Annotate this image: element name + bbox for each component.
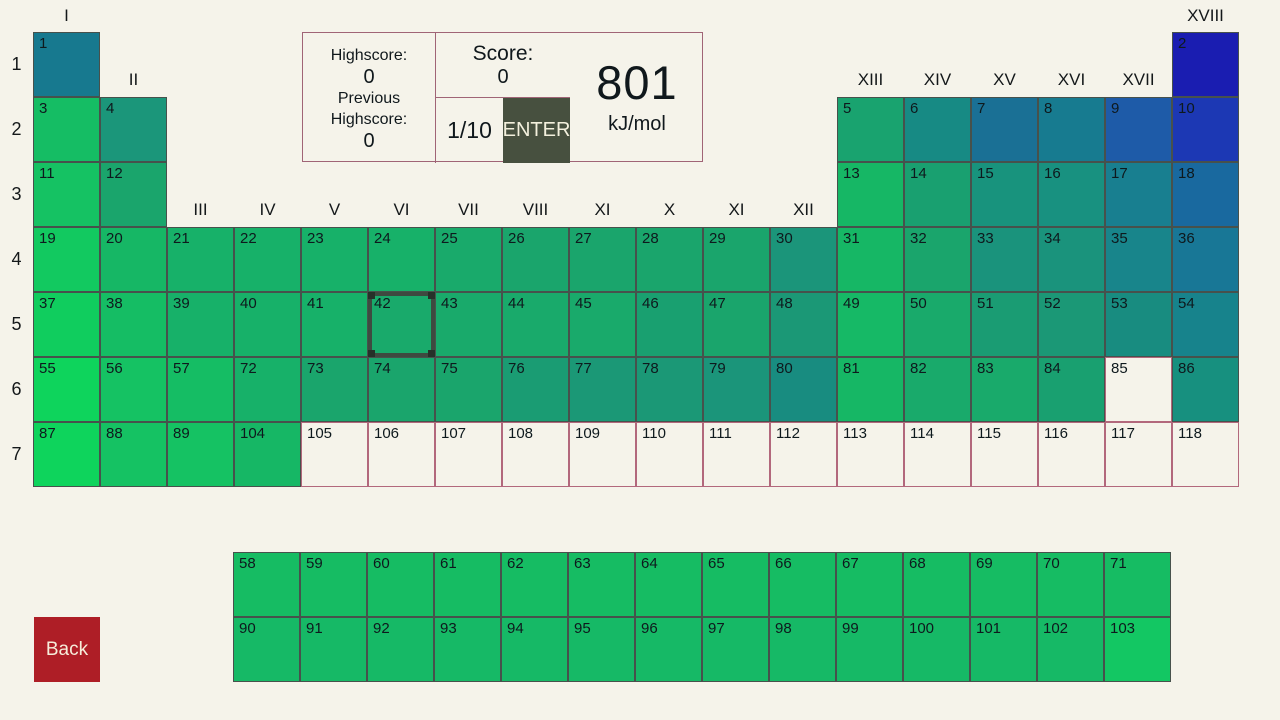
period-label-5: 5 xyxy=(0,292,33,357)
element-cell-51[interactable]: 51 xyxy=(971,292,1038,357)
element-cell-5[interactable]: 5 xyxy=(837,97,904,162)
element-number: 40 xyxy=(240,294,257,313)
element-cell-79[interactable]: 79 xyxy=(703,357,770,422)
element-number: 26 xyxy=(508,229,525,248)
element-number: 87 xyxy=(39,424,56,443)
element-cell-66[interactable]: 66 xyxy=(769,552,836,617)
element-number: 83 xyxy=(977,359,994,378)
element-cell-67[interactable]: 67 xyxy=(836,552,903,617)
element-number: 54 xyxy=(1178,294,1195,313)
element-cell-61[interactable]: 61 xyxy=(434,552,501,617)
element-number: 86 xyxy=(1178,359,1195,378)
element-number: 109 xyxy=(575,424,600,443)
element-number: 8 xyxy=(1044,99,1052,118)
element-cell-88[interactable]: 88 xyxy=(100,422,167,487)
element-number: 56 xyxy=(106,359,123,378)
element-cell-32[interactable]: 32 xyxy=(904,227,971,292)
element-cell-3[interactable]: 3 xyxy=(33,97,100,162)
element-number: 111 xyxy=(709,424,732,443)
element-cell-37[interactable]: 37 xyxy=(33,292,100,357)
element-number: 28 xyxy=(642,229,659,248)
element-cell-46[interactable]: 46 xyxy=(636,292,703,357)
element-cell-44[interactable]: 44 xyxy=(502,292,569,357)
element-cell-60[interactable]: 60 xyxy=(367,552,434,617)
element-number: 5 xyxy=(843,99,851,118)
element-number: 72 xyxy=(240,359,257,378)
ionization-energy-game-screen: Highscore: 0 Previous Highscore: 0 Score… xyxy=(0,0,1280,720)
element-cell-65[interactable]: 65 xyxy=(702,552,769,617)
element-number: 71 xyxy=(1110,554,1127,573)
element-cell-112[interactable]: 112 xyxy=(770,422,837,487)
element-cell-22[interactable]: 22 xyxy=(234,227,301,292)
element-number: 68 xyxy=(909,554,926,573)
element-cell-59[interactable]: 59 xyxy=(300,552,367,617)
group-label-iii: III xyxy=(167,200,234,220)
element-number: 39 xyxy=(173,294,190,313)
element-cell-35[interactable]: 35 xyxy=(1105,227,1172,292)
element-cell-77[interactable]: 77 xyxy=(569,357,636,422)
group-label-v: V xyxy=(301,200,368,220)
period-label-2: 2 xyxy=(0,97,33,162)
element-number: 50 xyxy=(910,294,927,313)
group-label-iv: IV xyxy=(234,200,301,220)
element-cell-80[interactable]: 80 xyxy=(770,357,837,422)
element-cell-64[interactable]: 64 xyxy=(635,552,702,617)
periodic-table-f-block-grid: 5859606162636465666768697071909192939495… xyxy=(233,552,1171,682)
element-number: 77 xyxy=(575,359,592,378)
element-cell-89[interactable]: 89 xyxy=(167,422,234,487)
element-number: 117 xyxy=(1111,424,1135,443)
element-cell-84[interactable]: 84 xyxy=(1038,357,1105,422)
element-cell-115[interactable]: 115 xyxy=(971,422,1038,487)
element-number: 104 xyxy=(240,424,265,443)
element-cell-102[interactable]: 102 xyxy=(1037,617,1104,682)
element-cell-116[interactable]: 116 xyxy=(1038,422,1105,487)
element-cell-63[interactable]: 63 xyxy=(568,552,635,617)
element-cell-72[interactable]: 72 xyxy=(234,357,301,422)
element-number: 80 xyxy=(776,359,793,378)
element-cell-70[interactable]: 70 xyxy=(1037,552,1104,617)
element-number: 100 xyxy=(909,619,934,638)
element-number: 79 xyxy=(709,359,726,378)
element-number: 33 xyxy=(977,229,994,248)
element-cell-19[interactable]: 19 xyxy=(33,227,100,292)
element-cell-81[interactable]: 81 xyxy=(837,357,904,422)
element-number: 66 xyxy=(775,554,792,573)
group-label-xiii: XIII xyxy=(837,70,904,90)
element-number: 48 xyxy=(776,294,793,313)
element-number: 29 xyxy=(709,229,726,248)
element-cell-71[interactable]: 71 xyxy=(1104,552,1171,617)
element-number: 17 xyxy=(1111,164,1128,183)
periodic-table-main-grid: 1234567891011121314151617181920212223242… xyxy=(33,32,1239,487)
element-number: 21 xyxy=(173,229,190,248)
element-number: 67 xyxy=(842,554,859,573)
element-number: 16 xyxy=(1044,164,1061,183)
element-cell-39[interactable]: 39 xyxy=(167,292,234,357)
element-cell-69[interactable]: 69 xyxy=(970,552,1037,617)
element-cell-96[interactable]: 96 xyxy=(635,617,702,682)
element-number: 35 xyxy=(1111,229,1128,248)
element-cell-118[interactable]: 118 xyxy=(1172,422,1239,487)
period-label-6: 6 xyxy=(0,357,33,422)
element-cell-110[interactable]: 110 xyxy=(636,422,703,487)
element-cell-90[interactable]: 90 xyxy=(233,617,300,682)
element-cell-16[interactable]: 16 xyxy=(1038,162,1105,227)
element-number: 38 xyxy=(106,294,123,313)
element-cell-50[interactable]: 50 xyxy=(904,292,971,357)
element-cell-38[interactable]: 38 xyxy=(100,292,167,357)
element-number: 11 xyxy=(39,164,55,183)
element-number: 113 xyxy=(843,424,867,443)
element-number: 76 xyxy=(508,359,525,378)
element-cell-6[interactable]: 6 xyxy=(904,97,971,162)
element-cell-91[interactable]: 91 xyxy=(300,617,367,682)
element-number: 78 xyxy=(642,359,659,378)
element-cell-104[interactable]: 104 xyxy=(234,422,301,487)
element-cell-52[interactable]: 52 xyxy=(1038,292,1105,357)
element-number: 14 xyxy=(910,164,927,183)
element-number: 51 xyxy=(977,294,994,313)
element-number: 44 xyxy=(508,294,525,313)
element-number: 27 xyxy=(575,229,592,248)
element-number: 34 xyxy=(1044,229,1061,248)
element-number: 49 xyxy=(843,294,860,313)
element-cell-43[interactable]: 43 xyxy=(435,292,502,357)
element-cell-95[interactable]: 95 xyxy=(568,617,635,682)
element-number: 32 xyxy=(910,229,927,248)
element-cell-26[interactable]: 26 xyxy=(502,227,569,292)
group-label-xi: XI xyxy=(569,200,636,220)
element-number: 43 xyxy=(441,294,458,313)
element-cell-74[interactable]: 74 xyxy=(368,357,435,422)
element-number: 61 xyxy=(440,554,457,573)
element-cell-75[interactable]: 75 xyxy=(435,357,502,422)
element-cell-33[interactable]: 33 xyxy=(971,227,1038,292)
element-number: 98 xyxy=(775,619,792,638)
element-cell-49[interactable]: 49 xyxy=(837,292,904,357)
element-cell-107[interactable]: 107 xyxy=(435,422,502,487)
element-number: 10 xyxy=(1178,99,1195,118)
element-number: 37 xyxy=(39,294,56,313)
element-cell-100[interactable]: 100 xyxy=(903,617,970,682)
element-cell-73[interactable]: 73 xyxy=(301,357,368,422)
element-cell-97[interactable]: 97 xyxy=(702,617,769,682)
element-number: 90 xyxy=(239,619,256,638)
element-cell-2[interactable]: 2 xyxy=(1172,32,1239,97)
element-number: 63 xyxy=(574,554,591,573)
element-cell-94[interactable]: 94 xyxy=(501,617,568,682)
element-cell-109[interactable]: 109 xyxy=(569,422,636,487)
element-number: 74 xyxy=(374,359,391,378)
group-label-ii: II xyxy=(100,70,167,90)
element-cell-20[interactable]: 20 xyxy=(100,227,167,292)
element-cell-30[interactable]: 30 xyxy=(770,227,837,292)
element-cell-41[interactable]: 41 xyxy=(301,292,368,357)
element-number: 18 xyxy=(1178,164,1195,183)
element-number: 9 xyxy=(1111,99,1119,118)
element-number: 84 xyxy=(1044,359,1061,378)
element-number: 25 xyxy=(441,229,458,248)
group-label-vi: VI xyxy=(368,200,435,220)
element-number: 13 xyxy=(843,164,860,183)
element-number: 106 xyxy=(374,424,399,443)
element-number: 112 xyxy=(776,424,800,443)
element-cell-7[interactable]: 7 xyxy=(971,97,1038,162)
element-cell-55[interactable]: 55 xyxy=(33,357,100,422)
element-number: 101 xyxy=(976,619,1001,638)
element-number: 70 xyxy=(1043,554,1060,573)
element-number: 118 xyxy=(1178,424,1202,443)
element-cell-57[interactable]: 57 xyxy=(167,357,234,422)
group-label-xii: XII xyxy=(770,200,837,220)
element-number: 107 xyxy=(441,424,466,443)
element-cell-68[interactable]: 68 xyxy=(903,552,970,617)
element-number: 99 xyxy=(842,619,859,638)
element-number: 4 xyxy=(106,99,114,118)
element-number: 97 xyxy=(708,619,725,638)
element-cell-17[interactable]: 17 xyxy=(1105,162,1172,227)
element-number: 73 xyxy=(307,359,324,378)
group-label-xv: XV xyxy=(971,70,1038,90)
group-label-xviii: XVIII xyxy=(1172,6,1239,26)
element-number: 23 xyxy=(307,229,324,248)
element-cell-21[interactable]: 21 xyxy=(167,227,234,292)
element-number: 41 xyxy=(307,294,324,313)
element-cell-58[interactable]: 58 xyxy=(233,552,300,617)
element-cell-106[interactable]: 106 xyxy=(368,422,435,487)
element-number: 6 xyxy=(910,99,918,118)
element-number: 81 xyxy=(843,359,860,378)
element-cell-9[interactable]: 9 xyxy=(1105,97,1172,162)
element-cell-18[interactable]: 18 xyxy=(1172,162,1239,227)
element-number: 85 xyxy=(1111,359,1128,378)
element-number: 91 xyxy=(306,619,323,638)
element-number: 59 xyxy=(306,554,323,573)
element-number: 60 xyxy=(373,554,390,573)
element-number: 22 xyxy=(240,229,257,248)
element-number: 95 xyxy=(574,619,591,638)
element-cell-117[interactable]: 117 xyxy=(1105,422,1172,487)
element-number: 88 xyxy=(106,424,123,443)
element-cell-56[interactable]: 56 xyxy=(100,357,167,422)
element-cell-87[interactable]: 87 xyxy=(33,422,100,487)
element-number: 53 xyxy=(1111,294,1128,313)
element-number: 103 xyxy=(1110,619,1135,638)
element-number: 108 xyxy=(508,424,533,443)
period-label-1: 1 xyxy=(0,32,33,97)
element-number: 42 xyxy=(374,294,391,313)
element-cell-42[interactable]: 42 xyxy=(368,292,435,357)
element-number: 52 xyxy=(1044,294,1061,313)
element-cell-47[interactable]: 47 xyxy=(703,292,770,357)
element-number: 102 xyxy=(1043,619,1068,638)
element-number: 58 xyxy=(239,554,256,573)
element-cell-36[interactable]: 36 xyxy=(1172,227,1239,292)
element-cell-82[interactable]: 82 xyxy=(904,357,971,422)
element-number: 2 xyxy=(1178,34,1186,53)
element-cell-25[interactable]: 25 xyxy=(435,227,502,292)
element-number: 45 xyxy=(575,294,592,313)
element-cell-83[interactable]: 83 xyxy=(971,357,1038,422)
element-cell-14[interactable]: 14 xyxy=(904,162,971,227)
element-cell-85[interactable]: 85 xyxy=(1105,357,1172,422)
element-number: 69 xyxy=(976,554,993,573)
element-cell-40[interactable]: 40 xyxy=(234,292,301,357)
element-cell-10[interactable]: 10 xyxy=(1172,97,1239,162)
element-cell-29[interactable]: 29 xyxy=(703,227,770,292)
element-cell-28[interactable]: 28 xyxy=(636,227,703,292)
element-number: 47 xyxy=(709,294,726,313)
back-button[interactable]: Back xyxy=(34,617,100,682)
element-cell-12[interactable]: 12 xyxy=(100,162,167,227)
element-cell-27[interactable]: 27 xyxy=(569,227,636,292)
element-number: 62 xyxy=(507,554,524,573)
element-cell-48[interactable]: 48 xyxy=(770,292,837,357)
element-cell-78[interactable]: 78 xyxy=(636,357,703,422)
element-cell-113[interactable]: 113 xyxy=(837,422,904,487)
group-label-x: X xyxy=(636,200,703,220)
group-label-viii: VIII xyxy=(502,200,569,220)
element-cell-108[interactable]: 108 xyxy=(502,422,569,487)
element-number: 19 xyxy=(39,229,56,248)
element-number: 3 xyxy=(39,99,47,118)
element-number: 15 xyxy=(977,164,994,183)
element-cell-1[interactable]: 1 xyxy=(33,32,100,97)
element-cell-86[interactable]: 86 xyxy=(1172,357,1239,422)
element-cell-13[interactable]: 13 xyxy=(837,162,904,227)
element-number: 92 xyxy=(373,619,390,638)
element-number: 116 xyxy=(1044,424,1068,443)
element-number: 30 xyxy=(776,229,793,248)
element-cell-24[interactable]: 24 xyxy=(368,227,435,292)
element-cell-101[interactable]: 101 xyxy=(970,617,1037,682)
element-number: 96 xyxy=(641,619,658,638)
group-label-vii: VII xyxy=(435,200,502,220)
element-number: 110 xyxy=(642,424,666,443)
group-label-xi: XI xyxy=(703,200,770,220)
element-cell-105[interactable]: 105 xyxy=(301,422,368,487)
group-label-i: I xyxy=(33,6,100,26)
period-label-7: 7 xyxy=(0,422,33,487)
element-number: 7 xyxy=(977,99,985,118)
element-cell-8[interactable]: 8 xyxy=(1038,97,1105,162)
element-number: 93 xyxy=(440,619,457,638)
element-number: 1 xyxy=(39,34,47,53)
period-label-4: 4 xyxy=(0,227,33,292)
element-number: 105 xyxy=(307,424,332,443)
element-number: 57 xyxy=(173,359,190,378)
element-cell-76[interactable]: 76 xyxy=(502,357,569,422)
element-cell-92[interactable]: 92 xyxy=(367,617,434,682)
group-label-xvi: XVI xyxy=(1038,70,1105,90)
element-cell-114[interactable]: 114 xyxy=(904,422,971,487)
element-number: 46 xyxy=(642,294,659,313)
period-label-3: 3 xyxy=(0,162,33,227)
element-number: 82 xyxy=(910,359,927,378)
element-number: 36 xyxy=(1178,229,1195,248)
element-number: 64 xyxy=(641,554,658,573)
element-number: 65 xyxy=(708,554,725,573)
element-cell-53[interactable]: 53 xyxy=(1105,292,1172,357)
element-number: 75 xyxy=(441,359,458,378)
element-cell-111[interactable]: 111 xyxy=(703,422,770,487)
element-cell-93[interactable]: 93 xyxy=(434,617,501,682)
element-cell-62[interactable]: 62 xyxy=(501,552,568,617)
element-number: 20 xyxy=(106,229,123,248)
element-number: 114 xyxy=(910,424,934,443)
element-cell-11[interactable]: 11 xyxy=(33,162,100,227)
element-cell-31[interactable]: 31 xyxy=(837,227,904,292)
element-cell-45[interactable]: 45 xyxy=(569,292,636,357)
element-number: 89 xyxy=(173,424,190,443)
element-cell-98[interactable]: 98 xyxy=(769,617,836,682)
element-number: 31 xyxy=(843,229,860,248)
element-cell-23[interactable]: 23 xyxy=(301,227,368,292)
group-label-xvii: XVII xyxy=(1105,70,1172,90)
group-label-xiv: XIV xyxy=(904,70,971,90)
element-number: 24 xyxy=(374,229,391,248)
element-cell-54[interactable]: 54 xyxy=(1172,292,1239,357)
element-number: 115 xyxy=(977,424,1001,443)
element-cell-15[interactable]: 15 xyxy=(971,162,1038,227)
element-cell-34[interactable]: 34 xyxy=(1038,227,1105,292)
element-cell-103[interactable]: 103 xyxy=(1104,617,1171,682)
element-cell-4[interactable]: 4 xyxy=(100,97,167,162)
element-cell-99[interactable]: 99 xyxy=(836,617,903,682)
element-number: 94 xyxy=(507,619,524,638)
element-number: 55 xyxy=(39,359,56,378)
element-number: 12 xyxy=(106,164,123,183)
